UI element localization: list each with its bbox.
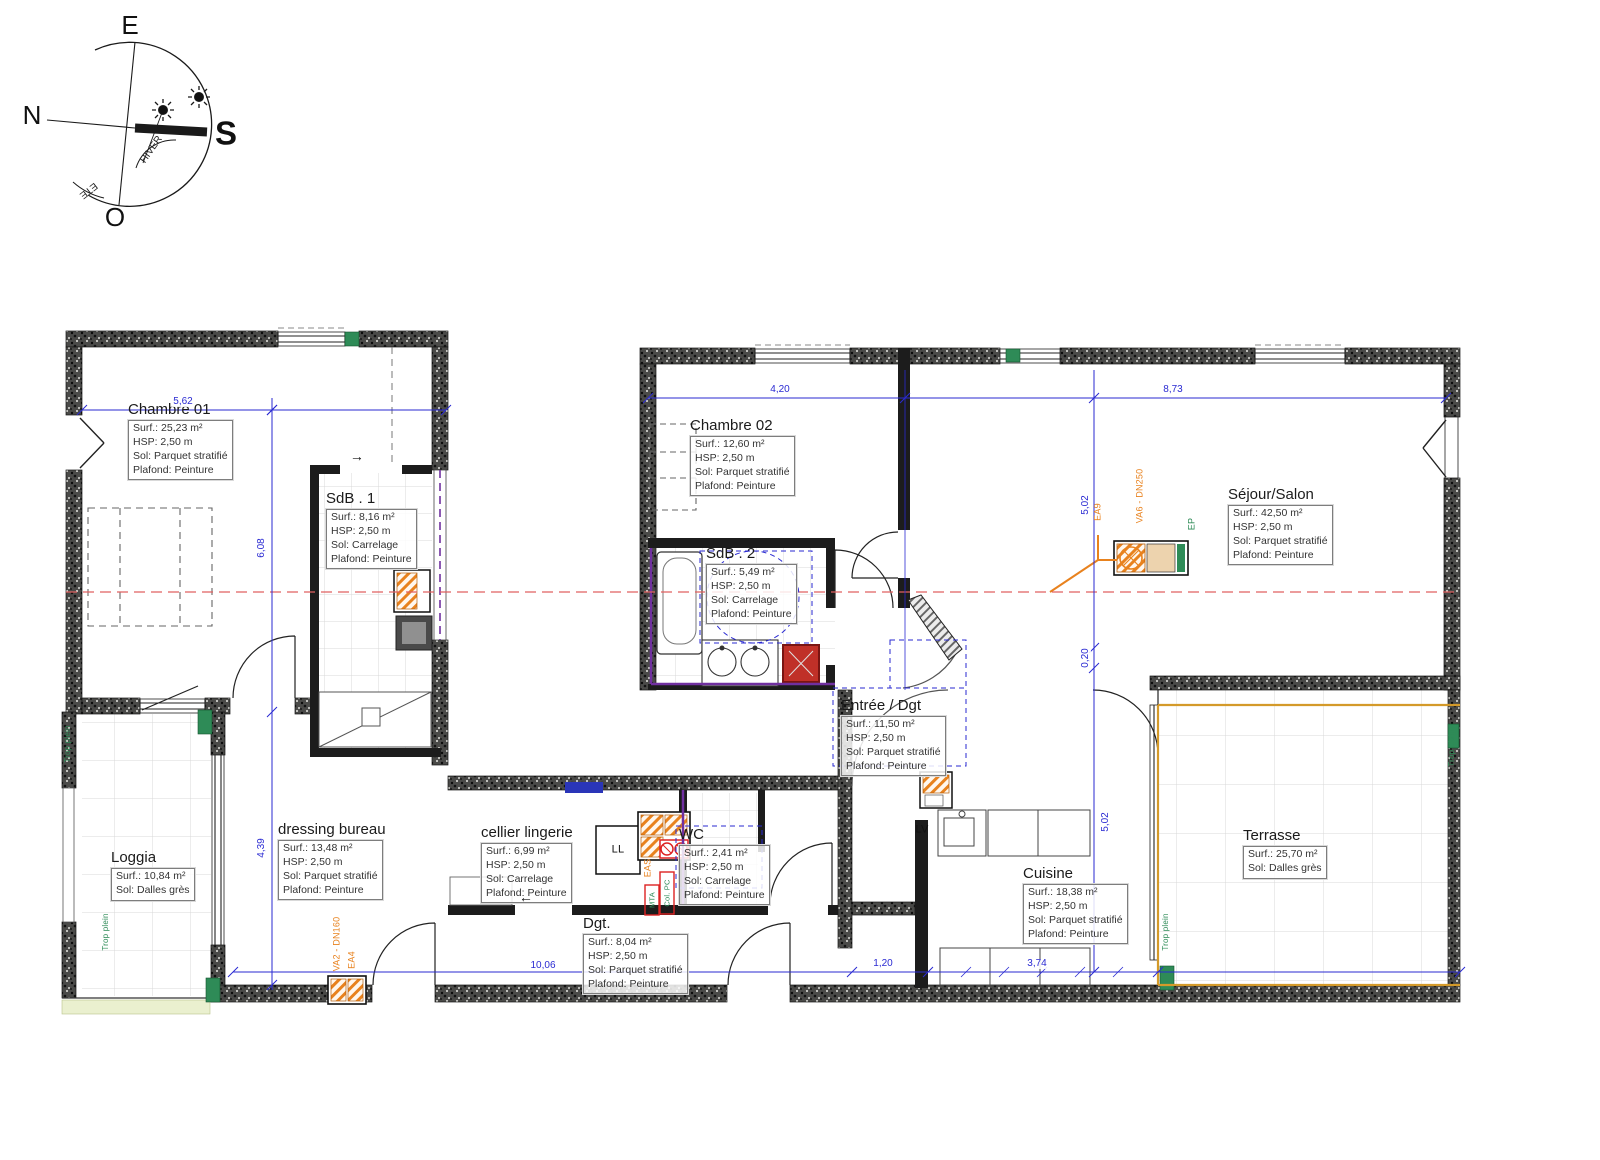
floor-plan-drawing [0,0,1600,1160]
room-label-chambre02: Chambre 02 Surf.: 12,60 m² HSP: 2,50 m S… [690,417,795,496]
room-surface: Surf.: 10,84 m² [116,870,190,884]
dim-right-mid: 0,20 [1081,646,1091,669]
dim-right-upper: 5,02 [1081,493,1091,516]
column-label-pc: Col. PC [663,879,671,906]
overflow-label-2: Trop plein [102,913,110,950]
bathtub-sdb2 [657,552,702,654]
room-surface: Surf.: 13,48 m² [283,842,378,856]
compass-east: E [121,12,138,38]
loggia-light-partition [63,788,74,922]
room-label-sejour: Séjour/Salon Surf.: 42,50 m² HSP: 2,50 m… [1228,486,1333,565]
room-hsp: HSP: 2,50 m [846,732,941,746]
room-hsp: HSP: 2,50 m [684,861,765,875]
room-ceiling: Plafond: Peinture [711,608,792,622]
dim-bottom-mid: 1,20 [871,959,894,969]
room-title: Séjour/Salon [1228,486,1333,503]
dim-bottom-left: 10,06 [528,961,557,971]
room-floor: Sol: Carrelage [711,594,792,608]
room-floor: Sol: Carrelage [684,875,765,889]
room-ceiling: Plafond: Peinture [133,464,228,478]
room-title: Chambre 02 [690,417,795,434]
room-floor: Sol: Parquet stratifié [846,746,941,760]
room-ceiling: Plafond: Peinture [1028,928,1123,942]
room-hsp: HSP: 2,50 m [133,436,228,450]
room-ceiling: Plafond: Peinture [283,884,378,898]
room-ceiling: Plafond: Peinture [846,760,941,774]
room-label-entree: Entrée / Dgt Surf.: 11,50 m² HSP: 2,50 m… [841,697,946,776]
pipe-label-eas: EAS [644,859,653,878]
room-floor: Sol: Parquet stratifié [1028,914,1123,928]
sejour-duct-box [1050,535,1188,592]
room-label-wc: WC Surf.: 2,41 m² HSP: 2,50 m Sol: Carre… [679,826,770,905]
room-hsp: HSP: 2,50 m [331,525,412,539]
room-surface: Surf.: 8,16 m² [331,511,412,525]
room-surface: Surf.: 11,50 m² [846,718,941,732]
room-surface: Surf.: 8,04 m² [588,936,683,950]
overflow-label-3: Trop plein [1162,913,1170,950]
overflow-label-1: Trop plein [64,725,72,762]
room-hsp: HSP: 2,50 m [588,950,683,964]
entree-duct-box [920,772,952,808]
pipe-label-ea4: EA4 [348,951,357,969]
dim-left-lower: 4,39 [257,836,267,859]
room-label-sdb2: SdB . 2 Surf.: 5,49 m² HSP: 2,50 m Sol: … [706,545,797,624]
room-title: Loggia [111,849,195,866]
dim-right-lower: 5,02 [1101,810,1111,833]
room-surface: Surf.: 5,49 m² [711,566,792,580]
door-swing-arrow-right: → [350,449,364,463]
room-label-sdb1: SdB . 1 Surf.: 8,16 m² HSP: 2,50 m Sol: … [326,490,417,569]
pipe-label-va6: VA6 - DN250 [1136,469,1145,524]
room-surface: Surf.: 6,99 m² [486,845,567,859]
column-label-mta: MTA [648,892,656,908]
room-label-dressing: dressing bureau Surf.: 13,48 m² HSP: 2,5… [278,821,386,900]
room-ceiling: Plafond: Peinture [588,978,683,992]
room-title: dressing bureau [278,821,386,838]
room-hsp: HSP: 2,50 m [1233,521,1328,535]
sun-icon-winter [152,99,174,121]
dim-left-upper: 6,08 [257,536,267,559]
room-floor: Sol: Carrelage [331,539,412,553]
dim-top-mid: 4,20 [768,385,791,395]
sdb1-duct-box [394,570,430,612]
washer-label: LL [612,845,625,856]
pipe-label-va2: VA2 - DN160 [333,917,342,972]
sun-icon-summer [188,86,210,108]
dim-top-left: 5,62 [171,397,194,407]
bottom-duct-box [328,976,366,1004]
room-surface: Surf.: 12,60 m² [695,438,790,452]
fixtures [88,347,1090,985]
floor-plan-page: E N S O HIVER ETE Chambre 01 Surf.: 25,2… [0,0,1600,1160]
dishwasher-label: LV [915,825,928,836]
shower-sdb1 [319,692,431,747]
washbasin-sdb1-bowl [402,622,426,644]
room-hsp: HSP: 2,50 m [486,859,567,873]
room-hsp: HSP: 2,50 m [1028,900,1123,914]
room-floor: Sol: Parquet stratifié [588,964,683,978]
room-hsp: HSP: 2,50 m [695,452,790,466]
room-floor: Sol: Dalles grès [1248,862,1322,876]
room-surface: Surf.: 18,38 m² [1028,886,1123,900]
room-label-terrasse: Terrasse Surf.: 25,70 m² Sol: Dalles grè… [1243,827,1327,879]
room-floor: Sol: Parquet stratifié [283,870,378,884]
room-ceiling: Plafond: Peinture [331,553,412,567]
room-title: Cuisine [1023,865,1128,882]
room-label-cuisine: Cuisine Surf.: 18,38 m² HSP: 2,50 m Sol:… [1023,865,1128,944]
pipe-label-ea9: EA9 [1094,503,1103,521]
door-swing-arrow-left: ← [519,890,533,904]
room-floor: Sol: Parquet stratifié [695,466,790,480]
room-floor: Sol: Carrelage [486,873,567,887]
room-label-chambre01: Chambre 01 Surf.: 25,23 m² HSP: 2,50 m S… [128,401,233,480]
threshold-marker [565,782,603,793]
room-label-loggia: Loggia Surf.: 10,84 m² Sol: Dalles grès [111,849,195,901]
dim-top-right: 8,73 [1161,385,1184,395]
double-sink-sdb2 [702,640,778,686]
room-floor: Sol: Dalles grès [116,884,190,898]
room-surface: Surf.: 25,70 m² [1248,848,1322,862]
overflow-label-4: Trop plein [1448,729,1456,766]
compass-west: O [105,204,125,230]
room-floor: Sol: Parquet stratifié [1233,535,1328,549]
compass-south: S [215,117,237,150]
room-surface: Surf.: 25,23 m² [133,422,228,436]
room-title: cellier lingerie [481,824,573,841]
room-hsp: HSP: 2,50 m [283,856,378,870]
room-ceiling: Plafond: Peinture [684,889,765,903]
room-surface: Surf.: 2,41 m² [684,847,765,861]
room-floor: Sol: Parquet stratifié [133,450,228,464]
pipe-label-ep: EP [1188,518,1197,530]
room-title: SdB . 1 [326,490,417,507]
room-title: Dgt. [583,915,688,932]
room-hsp: HSP: 2,50 m [711,580,792,594]
compass-rose [47,42,212,206]
room-title: Terrasse [1243,827,1327,844]
room-label-dgt: Dgt. Surf.: 8,04 m² HSP: 2,50 m Sol: Par… [583,915,688,994]
room-title: Entrée / Dgt [841,697,946,714]
room-surface: Surf.: 42,50 m² [1233,507,1328,521]
room-title: SdB . 2 [706,545,797,562]
room-title: WC [679,826,770,843]
compass-north: N [23,102,42,128]
wardrobe-chambre01 [88,508,212,626]
dim-bottom-right: 3,74 [1025,959,1048,969]
room-ceiling: Plafond: Peinture [1233,549,1328,563]
room-ceiling: Plafond: Peinture [695,480,790,494]
